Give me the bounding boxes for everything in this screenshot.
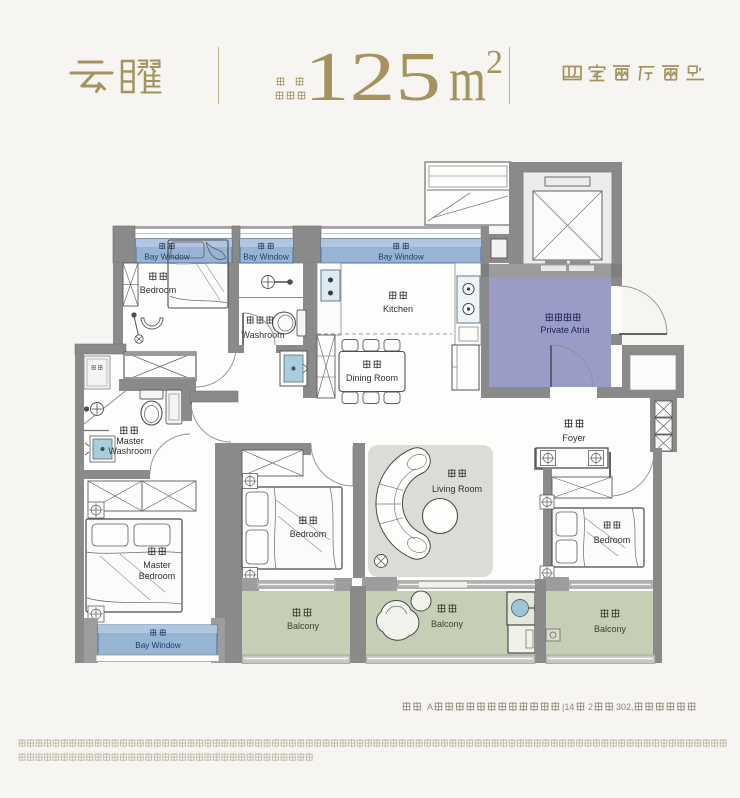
svg-text:2: 2 [588,702,593,712]
svg-text:Washroom: Washroom [241,330,284,340]
svg-text:Master: Master [116,436,144,446]
svg-text:|14: |14 [562,702,574,712]
svg-text:Bedroom: Bedroom [139,571,176,581]
svg-text:Master: Master [143,560,171,570]
svg-text:Bay Window: Bay Window [243,253,289,262]
svg-text:Dining Room: Dining Room [346,373,398,383]
svg-text:Bay Window: Bay Window [144,253,190,262]
svg-text:302,: 302, [616,702,634,712]
svg-text:A: A [427,702,433,712]
svg-text:Washroom: Washroom [108,446,151,456]
svg-text:Balcony: Balcony [287,621,320,631]
svg-text:125: 125 [304,39,441,116]
svg-text:Bedroom: Bedroom [290,529,327,539]
svg-text:Kitchen: Kitchen [383,304,413,314]
svg-text:Balcony: Balcony [594,624,627,634]
svg-text:Bedroom: Bedroom [594,535,631,545]
svg-text:Bay Window: Bay Window [378,253,424,262]
svg-text:2: 2 [486,44,503,81]
svg-text:Balcony: Balcony [431,619,464,629]
svg-text:Living Room: Living Room [432,484,482,494]
svg-text:Bedroom: Bedroom [140,285,177,295]
svg-text:Private Atria: Private Atria [540,325,590,335]
svg-text:Bay Window: Bay Window [135,641,181,650]
svg-text:Foyer: Foyer [562,433,586,443]
svg-text:m: m [449,46,486,114]
